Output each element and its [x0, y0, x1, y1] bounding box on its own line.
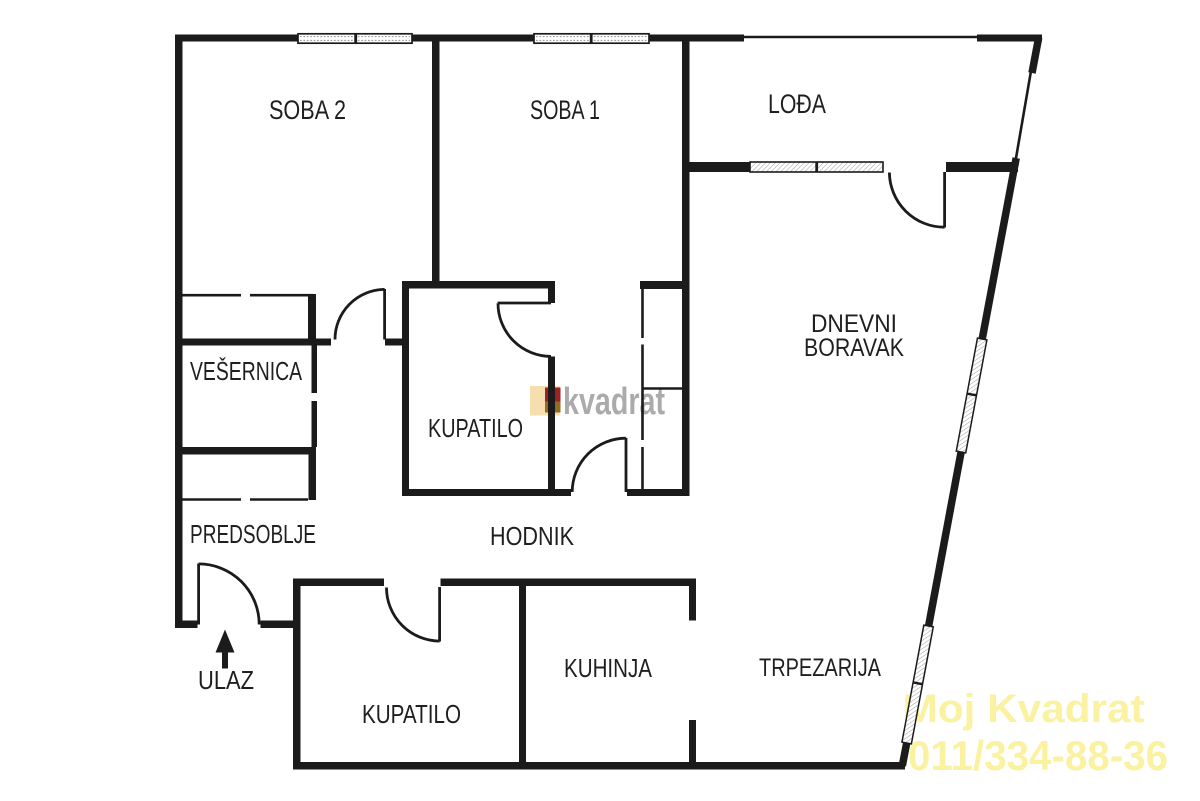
svg-text:KUPATILO: KUPATILO	[362, 699, 461, 729]
svg-text:SOBA 1: SOBA 1	[530, 95, 600, 125]
svg-text:LOĐA: LOĐA	[768, 89, 826, 119]
svg-text:BORAVAK: BORAVAK	[804, 334, 904, 362]
svg-text:VEŠERNICA: VEŠERNICA	[190, 356, 302, 386]
svg-text:KUHINJA: KUHINJA	[564, 653, 653, 683]
svg-text:011/334-88-36: 011/334-88-36	[908, 732, 1168, 779]
svg-text:ULAZ: ULAZ	[198, 665, 254, 695]
svg-text:TRPEZARIJA: TRPEZARIJA	[759, 654, 881, 682]
svg-text:KUPATILO: KUPATILO	[428, 413, 523, 443]
svg-text:Moj Kvadrat: Moj Kvadrat	[903, 687, 1145, 731]
svg-text:SOBA 2: SOBA 2	[269, 95, 346, 125]
svg-text:PREDSOBLJE: PREDSOBLJE	[190, 519, 316, 549]
svg-text:HODNIK: HODNIK	[490, 521, 575, 551]
